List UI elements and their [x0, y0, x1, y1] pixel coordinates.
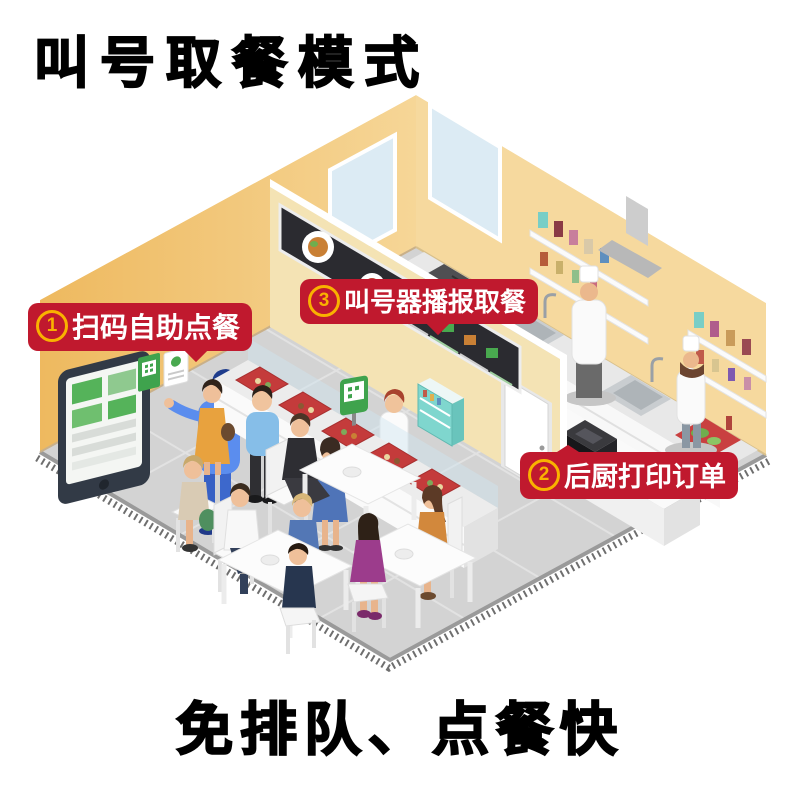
promo-poster: { "title": "叫号取餐模式", "slogan": "免排队、点餐快"… [0, 0, 800, 800]
step-label: 叫号器播报取餐 [344, 282, 526, 319]
chef-hat [580, 266, 598, 282]
step-badge-scan-order: 1 扫码自助点餐 [28, 303, 252, 351]
step-label: 扫码自助点餐 [72, 306, 240, 346]
self-order-kiosk [58, 349, 150, 506]
handbag [221, 423, 235, 441]
step-label: 后厨打印订单 [564, 455, 726, 494]
bottom-slogan: 免排队、点餐快 [0, 684, 800, 766]
restaurant-illustration [0, 0, 800, 800]
door-knob [540, 446, 545, 451]
step-badge-call-number: 3 叫号器播报取餐 [300, 279, 538, 324]
step-badge-kitchen-print: 2 后厨打印订单 [520, 452, 738, 499]
qr-code [344, 381, 364, 403]
chef-hat [683, 336, 699, 351]
page-title: 叫号取餐模式 [34, 18, 430, 98]
step-number: 2 [528, 459, 560, 491]
hand [164, 398, 174, 408]
step-number: 3 [308, 285, 340, 317]
step-number: 1 [36, 310, 68, 342]
chair [280, 608, 320, 654]
